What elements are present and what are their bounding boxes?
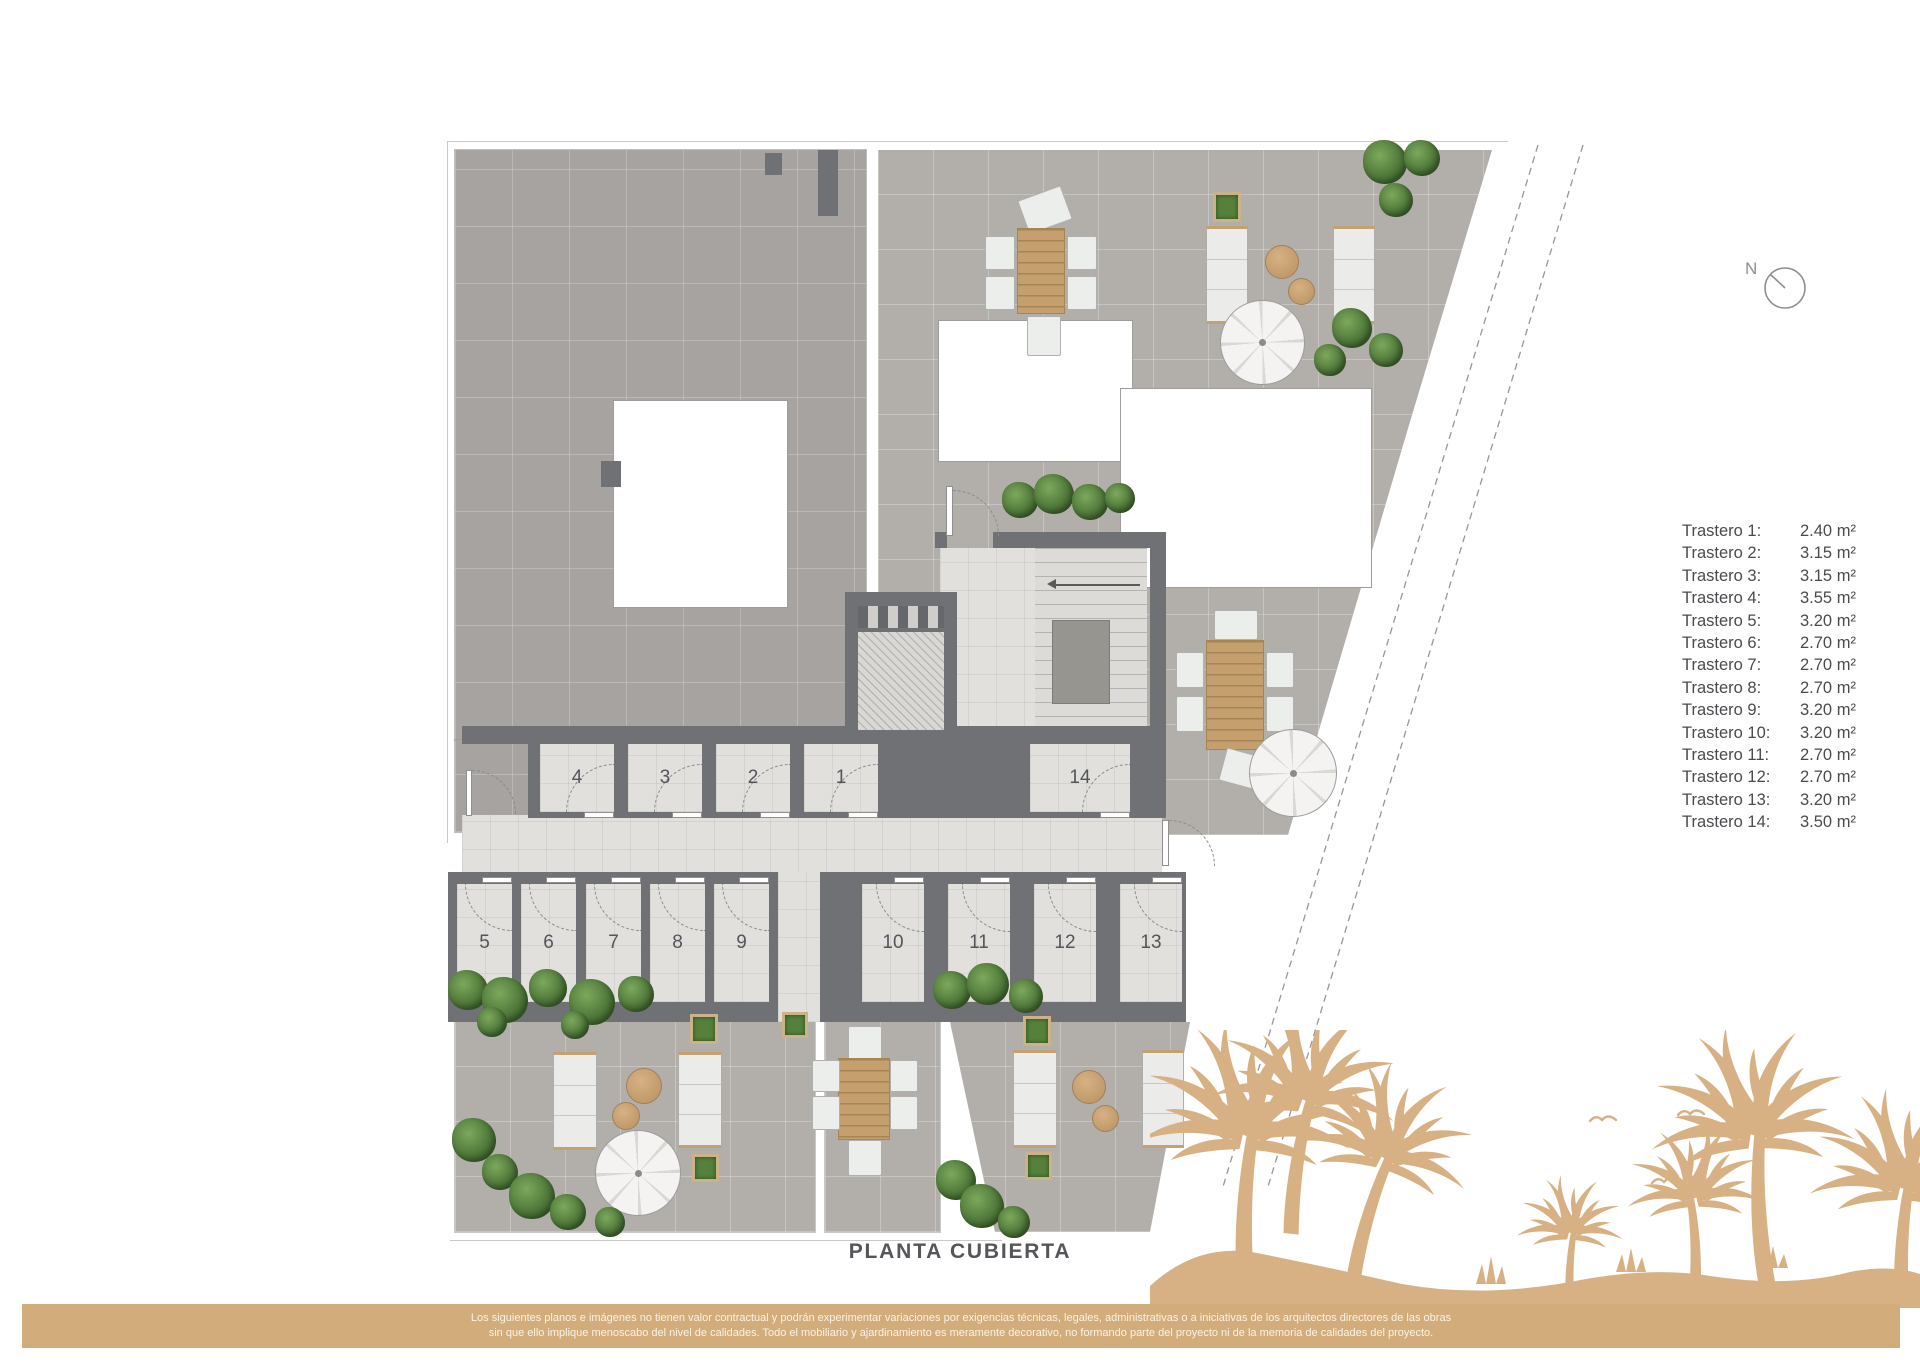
patio-chair [1067, 236, 1097, 270]
shrub [618, 976, 654, 1012]
room-number-label: 12 [1034, 884, 1096, 1002]
door-leaf [894, 877, 924, 883]
patio-chair [812, 1060, 840, 1092]
shrub [1105, 483, 1135, 513]
room-number-label: 10 [862, 884, 924, 1002]
planter-box [1025, 1152, 1052, 1180]
patio-chair [890, 1096, 918, 1130]
shrub [933, 971, 971, 1009]
side-table [626, 1068, 662, 1104]
shrub [477, 1007, 507, 1037]
door-leaf [739, 877, 769, 883]
elevator-cab [858, 632, 944, 730]
parasol [1249, 729, 1337, 817]
shrub [1072, 484, 1108, 520]
stair-direction-line [1052, 584, 1140, 586]
door-leaf [611, 877, 641, 883]
stair-landing [1052, 620, 1110, 704]
patio-chair [812, 1096, 840, 1130]
door-leaf [546, 877, 576, 883]
chimney [765, 153, 782, 175]
door-leaf [1162, 820, 1169, 866]
shrub [1363, 140, 1407, 184]
palm-beach-silhouette [1150, 1030, 1920, 1308]
core-wall-top-b [993, 532, 1160, 548]
footer-line-2: sin que ello implique menoscabo del nive… [22, 1326, 1900, 1341]
core-wall-right [1150, 532, 1166, 726]
terrace-passage [778, 872, 820, 1022]
side-table [1092, 1105, 1119, 1132]
shrub [1002, 482, 1038, 518]
shrub [1314, 344, 1346, 376]
shrub [1009, 979, 1043, 1013]
shrub [967, 963, 1009, 1005]
room-number-label: 13 [1120, 884, 1182, 1002]
shrub [595, 1207, 625, 1237]
room-number-label: 4 [540, 744, 614, 812]
door-leaf [980, 877, 1010, 883]
patio-chair [1176, 696, 1204, 732]
side-table [1288, 278, 1315, 305]
planter-box [782, 1012, 808, 1038]
room-number-label: 8 [650, 884, 705, 1002]
patio-chair [1266, 696, 1294, 732]
door-leaf [848, 812, 878, 818]
side-table [1265, 245, 1299, 279]
patio-chair [890, 1060, 918, 1092]
stair-direction-arrowhead [1042, 579, 1056, 589]
door-leaf [1100, 812, 1130, 818]
shrub [998, 1206, 1030, 1238]
room-number-label: 14 [1030, 744, 1130, 812]
room-number-label: 3 [628, 744, 702, 812]
door-leaf [946, 486, 953, 536]
wall-between-cores [912, 726, 1016, 818]
patio-chair [848, 1140, 882, 1176]
elevator-mechanism [858, 606, 944, 628]
shrub [509, 1173, 555, 1219]
hairline-top [448, 141, 1508, 142]
planter-box [1213, 192, 1241, 222]
patio-chair [985, 276, 1015, 310]
planter-box [690, 1014, 718, 1044]
planter-box [1023, 1016, 1051, 1046]
footer-banner: Los siguientes planos e imágenes no tien… [22, 1304, 1900, 1348]
door-leaf [482, 877, 512, 883]
shrub [550, 1194, 586, 1230]
room-number-label: 9 [714, 884, 769, 1002]
patio-chair [1027, 316, 1061, 356]
north-compass-icon: N [1735, 246, 1830, 314]
patio-chair [1214, 610, 1258, 640]
footer-line-1: Los siguientes planos e imágenes no tien… [22, 1311, 1900, 1326]
sun-lounger [1013, 1050, 1057, 1148]
door-leaf [584, 812, 614, 818]
sun-lounger [678, 1052, 722, 1148]
shrub [1332, 308, 1372, 348]
door-leaf [675, 877, 705, 883]
shrub [1369, 333, 1403, 367]
corridor-horizontal [462, 815, 1162, 878]
chimney [818, 150, 838, 216]
patio-chair [848, 1026, 882, 1060]
shrub [529, 969, 567, 1007]
room-number-label: 1 [804, 744, 878, 812]
patio-chair [1067, 276, 1097, 310]
shrub [1404, 140, 1440, 176]
plan-title: PLANTA CUBIERTA [0, 1240, 1920, 1264]
patio-chair [1266, 652, 1294, 688]
shrub [1379, 183, 1413, 217]
patio-chair [985, 236, 1015, 270]
dining-table [1206, 640, 1264, 750]
sun-lounger [553, 1052, 597, 1150]
roof-block [601, 461, 621, 487]
patio-chair [1176, 652, 1204, 688]
door-leaf [672, 812, 702, 818]
page: { "page": { "title_label": "PLANTA CUBIE… [0, 0, 1920, 1370]
north-label: N [1745, 259, 1757, 278]
door-leaf [760, 812, 790, 818]
parasol [595, 1130, 681, 1216]
parasol [1220, 300, 1305, 385]
door-leaf [1066, 877, 1096, 883]
door-leaf [1152, 877, 1182, 883]
room-number-label: 2 [716, 744, 790, 812]
planter-box [692, 1154, 719, 1182]
dining-table [1017, 228, 1065, 314]
dining-table [838, 1058, 890, 1140]
shrub [561, 1011, 589, 1039]
skylight-patio-a [613, 400, 788, 608]
hairline-left [447, 141, 448, 843]
shrub [1034, 474, 1074, 514]
side-table [1072, 1070, 1106, 1104]
side-table [612, 1102, 640, 1130]
